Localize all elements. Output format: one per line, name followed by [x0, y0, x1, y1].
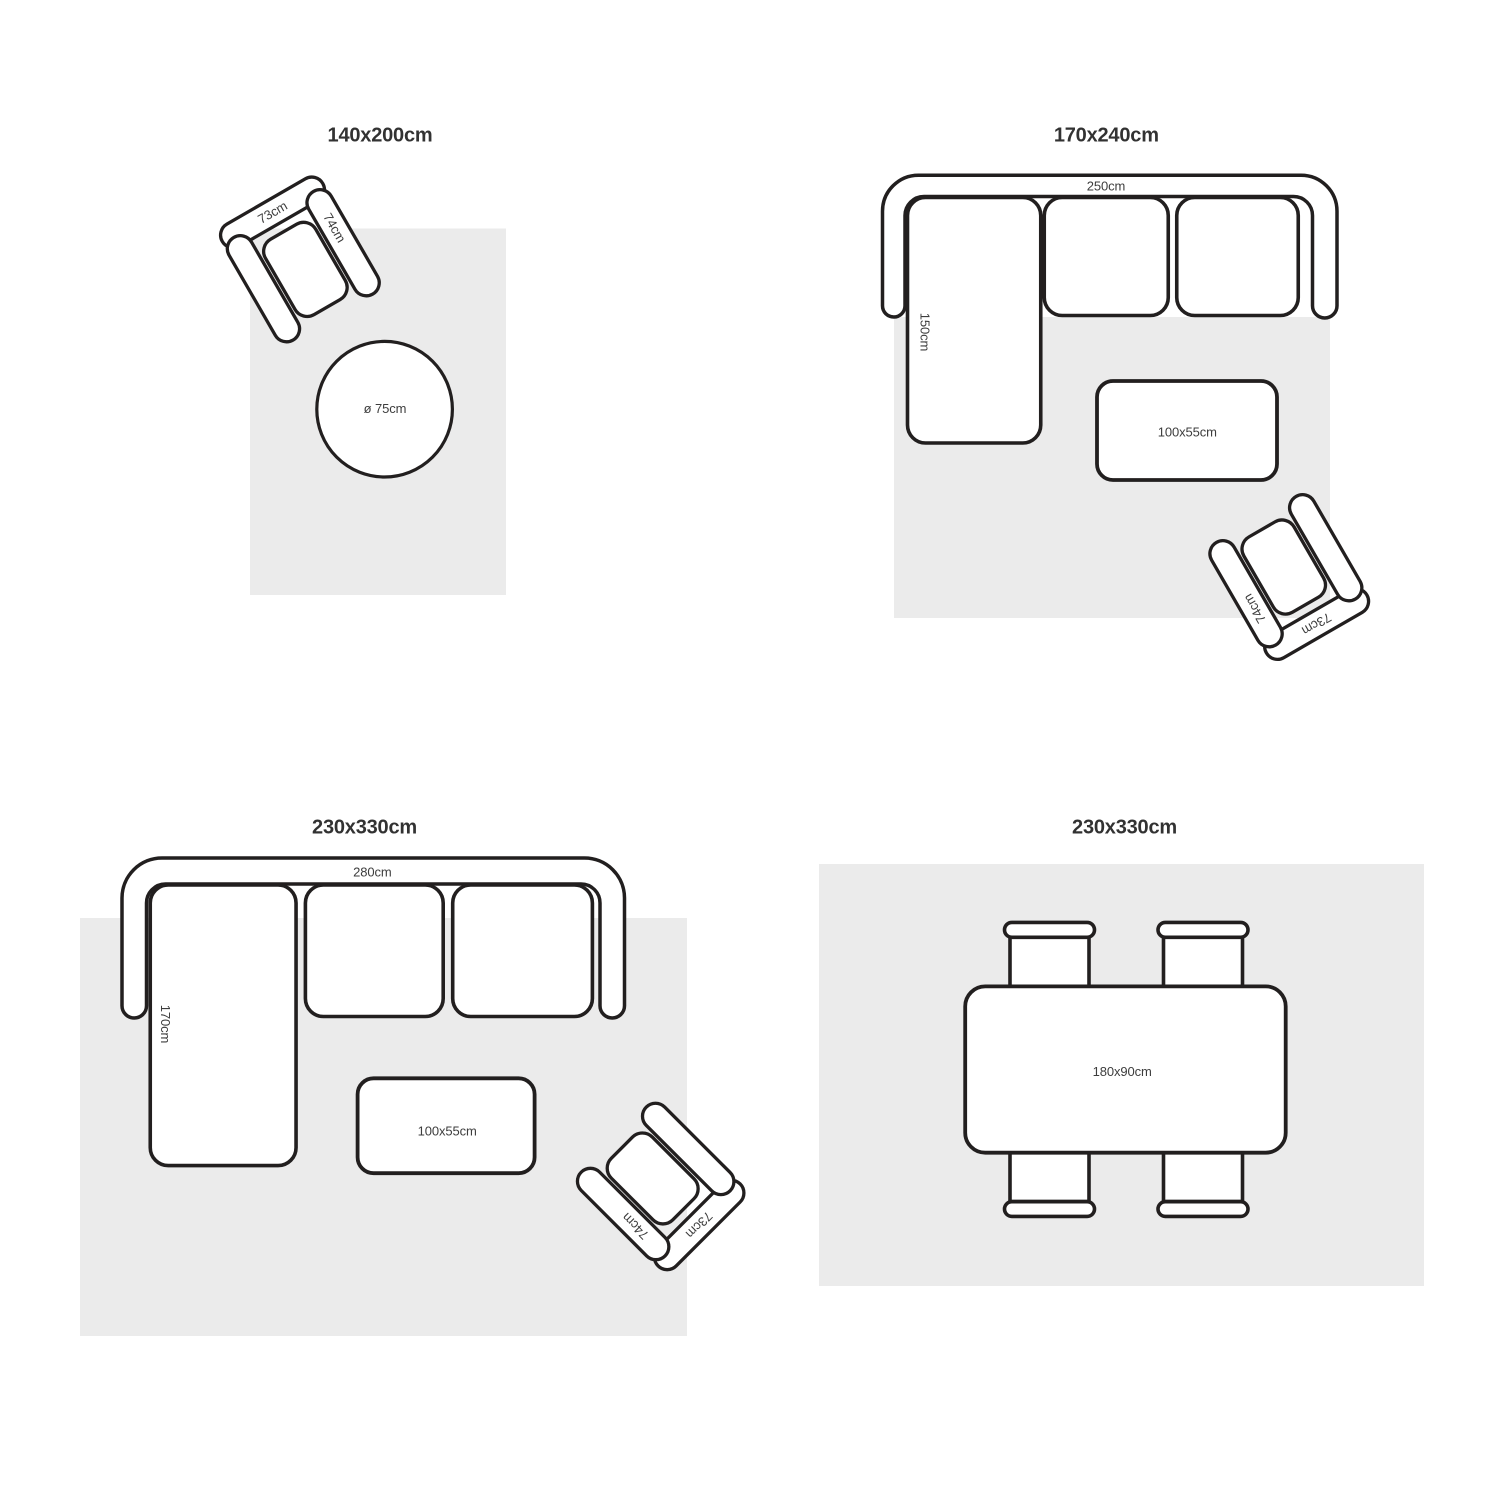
svg-text:170cm: 170cm [158, 1005, 173, 1044]
svg-text:100x55cm: 100x55cm [418, 1123, 477, 1138]
svg-text:250cm: 250cm [1087, 178, 1126, 193]
svg-text:150cm: 150cm [918, 313, 933, 352]
svg-text:140x200cm: 140x200cm [328, 124, 433, 146]
svg-text:170x240cm: 170x240cm [1054, 124, 1159, 146]
svg-text:230x330cm: 230x330cm [1072, 816, 1177, 838]
svg-text:100x55cm: 100x55cm [1158, 425, 1217, 440]
svg-text:180x90cm: 180x90cm [1093, 1064, 1152, 1079]
svg-text:280cm: 280cm [353, 864, 392, 879]
svg-text:ø 75cm: ø 75cm [364, 401, 407, 416]
svg-text:230x330cm: 230x330cm [312, 816, 417, 838]
